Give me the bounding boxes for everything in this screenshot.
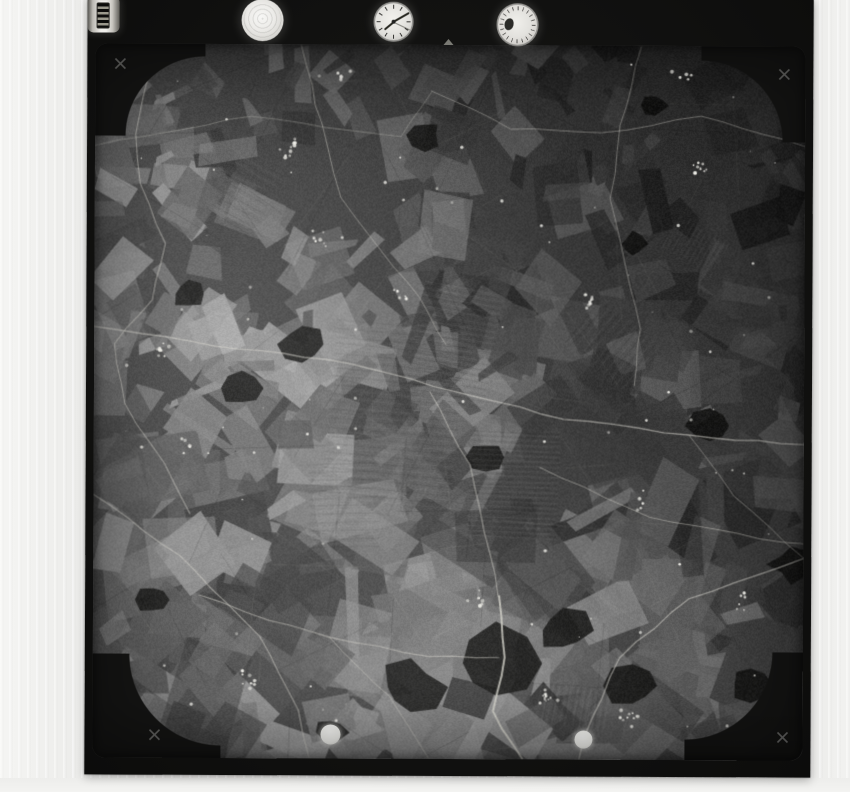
spirit-level-disc-icon xyxy=(242,0,284,41)
registration-dot-left xyxy=(320,724,340,744)
fiducial-cross-top-left-icon xyxy=(113,57,127,71)
film-frame xyxy=(84,0,813,778)
counter-digit-ladder xyxy=(98,3,109,27)
frame-counter-icon xyxy=(88,0,120,33)
fiducial-cross-bottom-right-icon xyxy=(775,730,789,744)
aerial-canvas xyxy=(92,43,805,760)
fiducial-cross-bottom-left-icon xyxy=(147,728,161,742)
counter-window xyxy=(97,2,110,28)
counter-cap xyxy=(92,0,116,1)
aerial-photograph xyxy=(92,43,805,760)
paper-bottom-band xyxy=(0,778,850,792)
fiducial-notch-top-center xyxy=(443,39,453,45)
clock-center-pin xyxy=(392,20,396,24)
fiducial-cross-top-right-icon xyxy=(777,67,791,81)
mission-clock-icon xyxy=(374,2,414,42)
altimeter-dial-icon xyxy=(496,3,538,46)
level-disc-rings xyxy=(244,1,282,39)
registration-dot-right xyxy=(574,731,592,749)
